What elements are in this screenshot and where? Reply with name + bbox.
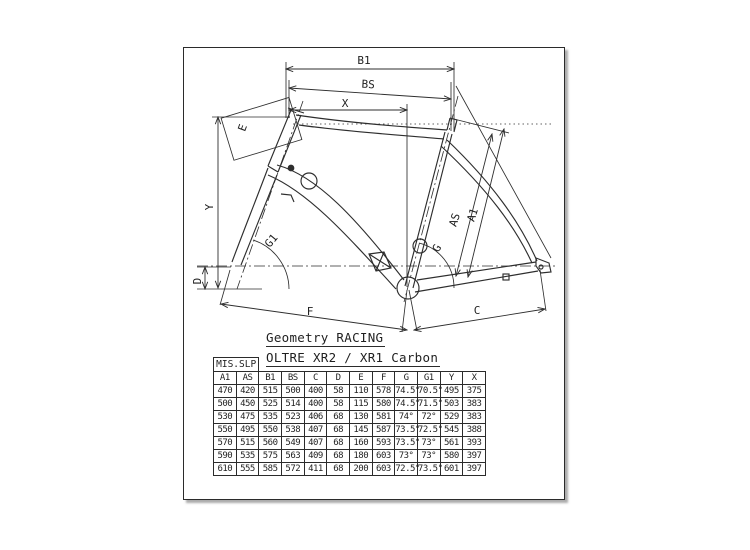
table-cell: 535: [259, 411, 282, 424]
table-cell: 590: [214, 450, 237, 463]
dim-label-as: AS: [446, 212, 462, 229]
table-cell: 515: [236, 437, 259, 450]
table-cell: 603: [372, 450, 395, 463]
table-cell: 585: [259, 463, 282, 476]
table-cell: 400: [304, 398, 327, 411]
table-cell: 530: [214, 411, 237, 424]
table-cell: 587: [372, 424, 395, 437]
table-cell: 550: [259, 424, 282, 437]
table-cell: 578: [372, 385, 395, 398]
table-cell: 383: [463, 411, 486, 424]
table-cell: 495: [236, 424, 259, 437]
dim-label-x: X: [342, 97, 349, 110]
table-cell: 400: [304, 385, 327, 398]
table-cell: 68: [327, 424, 350, 437]
table-cell: 563: [281, 450, 304, 463]
table-cell: 538: [281, 424, 304, 437]
table-cell: 503: [440, 398, 463, 411]
table-cell: 409: [304, 450, 327, 463]
table-cell: 529: [440, 411, 463, 424]
table-row: 6105555855724116820060372.5°73.5°601397: [214, 463, 486, 476]
table-cell: 411: [304, 463, 327, 476]
table-row: 5705155605494076816059373.5°73°561393: [214, 437, 486, 450]
col-header-g: G: [395, 372, 418, 385]
table-cell: 68: [327, 450, 350, 463]
table-cell: 514: [281, 398, 304, 411]
table-cell: 74.5°: [395, 385, 418, 398]
col-header-x: X: [463, 372, 486, 385]
table-cell: 603: [372, 463, 395, 476]
dimension-labels: B1 BS X E Y G1 D F C G AS A1: [191, 54, 481, 318]
table-cell: 388: [463, 424, 486, 437]
table-cell: 560: [259, 437, 282, 450]
table-row: 5504955505384076814558773.5°72.5°545388: [214, 424, 486, 437]
table-cell: 397: [463, 450, 486, 463]
dim-label-bs: BS: [361, 78, 375, 92]
table-cell: 71.5°: [417, 398, 440, 411]
col-header-as: AS: [236, 372, 259, 385]
table-cell: 145: [349, 424, 372, 437]
table-cell: 593: [372, 437, 395, 450]
table-cell: 495: [440, 385, 463, 398]
table-cell: 561: [440, 437, 463, 450]
table-cell: 535: [236, 450, 259, 463]
table-cell: 73.5°: [395, 437, 418, 450]
table-cell: 420: [236, 385, 259, 398]
table-cell: 70.5°: [417, 385, 440, 398]
table-cell: 58: [327, 385, 350, 398]
table-cell: 73.5°: [395, 424, 418, 437]
col-header-d: D: [327, 372, 350, 385]
table-cell: 575: [259, 450, 282, 463]
col-header-c: C: [304, 372, 327, 385]
page: B1 BS X E Y G1 D F C G AS A1 Geometry RA…: [0, 0, 750, 550]
table-cell: 130: [349, 411, 372, 424]
table-row: 5004505255144005811558074.5°71.5°503383: [214, 398, 486, 411]
col-header-a1: A1: [214, 372, 237, 385]
table-cell: 74.5°: [395, 398, 418, 411]
table-cell: 580: [440, 450, 463, 463]
table-cell: 160: [349, 437, 372, 450]
table-cell: 72.5°: [395, 463, 418, 476]
table-cell: 73.5°: [417, 463, 440, 476]
frame-drawing: [232, 108, 551, 299]
table-corner-label: MIS.SLP: [214, 358, 259, 372]
dim-label-b1: B1: [357, 54, 370, 67]
col-header-bs: BS: [281, 372, 304, 385]
table-cell: 523: [281, 411, 304, 424]
table-header-row: A1 AS B1 BS C D E F G G1 Y X: [214, 372, 486, 385]
dim-label-y: Y: [203, 203, 216, 210]
table-cell: 200: [349, 463, 372, 476]
col-header-g1: G1: [417, 372, 440, 385]
table-cell: 500: [214, 398, 237, 411]
table-cell: 397: [463, 463, 486, 476]
table-cell: 572: [281, 463, 304, 476]
table-cell: 610: [214, 463, 237, 476]
table-cell: 110: [349, 385, 372, 398]
dim-label-g: G: [430, 242, 445, 254]
table-cell: 570: [214, 437, 237, 450]
table-cell: 180: [349, 450, 372, 463]
table-row: 4704205155004005811057874.5°70.5°495375: [214, 385, 486, 398]
dim-label-c: C: [474, 304, 481, 317]
table-cell: 74°: [395, 411, 418, 424]
table-cell: 375: [463, 385, 486, 398]
table-cell: 73°: [395, 450, 418, 463]
geometry-table: MIS.SLP A1 AS B1 BS C D E F G G1 Y X 470…: [213, 357, 486, 476]
table-cell: 68: [327, 463, 350, 476]
table-cell: 68: [327, 437, 350, 450]
table-cell: 393: [463, 437, 486, 450]
table-cell: 475: [236, 411, 259, 424]
table-cell: 550: [214, 424, 237, 437]
table-cell: 406: [304, 411, 327, 424]
table-cell: 72.5°: [417, 424, 440, 437]
table-cell: 72°: [417, 411, 440, 424]
table-cell: 525: [259, 398, 282, 411]
col-header-y: Y: [440, 372, 463, 385]
dim-label-f: F: [307, 305, 314, 318]
table-cell: 407: [304, 437, 327, 450]
table-cell: 383: [463, 398, 486, 411]
dim-label-a1: A1: [464, 207, 480, 224]
table-cell: 407: [304, 424, 327, 437]
dim-label-d: D: [191, 278, 204, 285]
table-cell: 549: [281, 437, 304, 450]
table-cell: 450: [236, 398, 259, 411]
table-cell: 73°: [417, 450, 440, 463]
col-header-f: F: [372, 372, 395, 385]
col-header-b1: B1: [259, 372, 282, 385]
table-cell: 470: [214, 385, 237, 398]
table-cell: 580: [372, 398, 395, 411]
dim-label-e: E: [235, 122, 249, 133]
table-blank-area: [259, 358, 486, 372]
col-header-e: E: [349, 372, 372, 385]
table-cell: 555: [236, 463, 259, 476]
table-cell: 58: [327, 398, 350, 411]
table-corner-row: MIS.SLP: [214, 358, 486, 372]
table-cell: 500: [281, 385, 304, 398]
table-cell: 601: [440, 463, 463, 476]
table-cell: 115: [349, 398, 372, 411]
table-cell: 73°: [417, 437, 440, 450]
table-cell: 68: [327, 411, 350, 424]
table-row: 5304755355234066813058174°72°529383: [214, 411, 486, 424]
table-row: 5905355755634096818060373°73°580397: [214, 450, 486, 463]
dim-label-g1: G1: [262, 231, 280, 250]
table-cell: 545: [440, 424, 463, 437]
table-cell: 581: [372, 411, 395, 424]
geometry-title: Geometry RACING: [266, 330, 385, 347]
table-cell: 515: [259, 385, 282, 398]
